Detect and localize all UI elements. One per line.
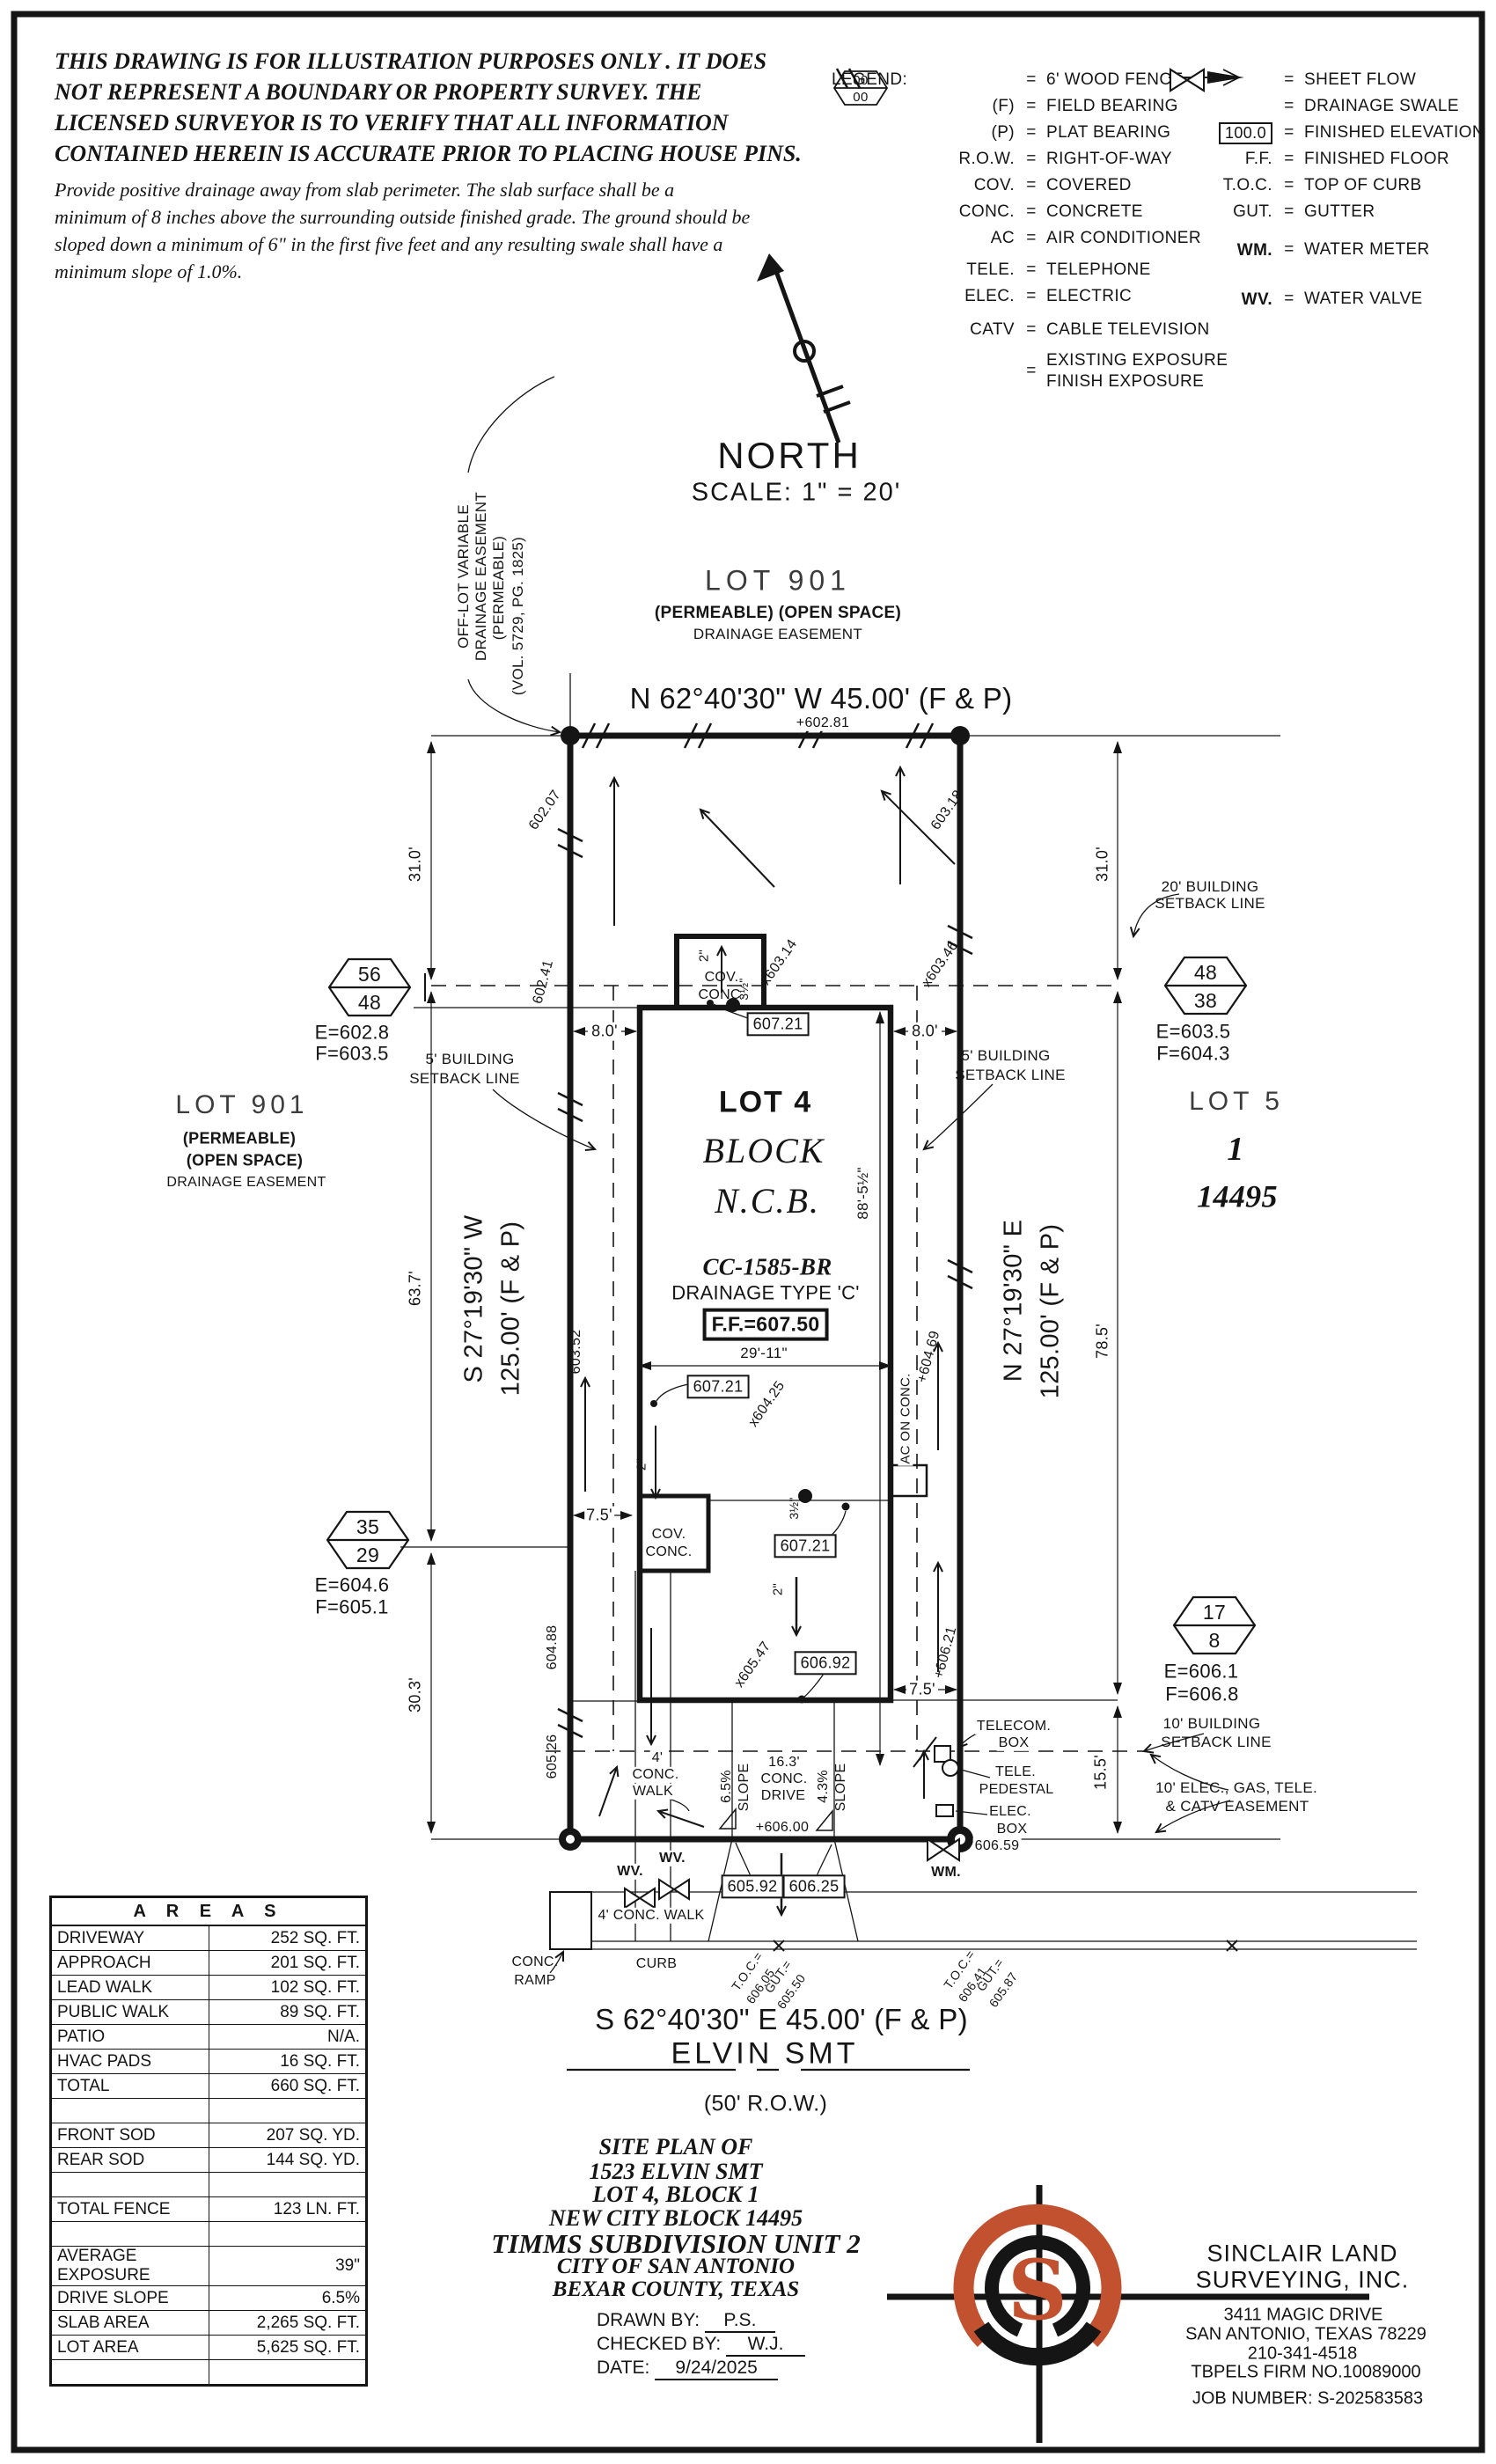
legend-abbr: WV. (1242, 291, 1272, 308)
areas-row-value: 207 SQ. YD. (209, 2123, 367, 2148)
spot-elev-604-88: 604.88 (545, 1625, 561, 1670)
legend-def: EXISTING EXPOSURE (1046, 350, 1228, 371)
dim-2in-low: 2" (770, 1583, 785, 1595)
checked-by-label: CHECKED BY: (597, 2334, 721, 2354)
areas-row-label (51, 2173, 209, 2197)
elev-box-607-21-b: 607.21 (687, 1375, 750, 1398)
legend-def: RIGHT-OF-WAY (1046, 150, 1172, 169)
elec-box-label-1: ELEC. (987, 1804, 1033, 1820)
areas-row-value: 5,625 SQ. FT. (209, 2336, 367, 2360)
ac-pad (891, 1465, 927, 1496)
legend-def: PLAT BEARING (1046, 123, 1170, 143)
areas-row-label: PATIO (51, 2025, 209, 2050)
areas-row (51, 2360, 367, 2386)
water-valve-symbol (625, 1888, 655, 1908)
legend-def: FINISH EXPOSURE (1046, 371, 1228, 392)
legend-abbr: TELE. (913, 260, 1016, 280)
disclaimer-line: minimum of 8 inches above the surroundin… (55, 203, 802, 231)
dim-31-0-left: 31.0' (407, 845, 425, 884)
legend-abbr: T.O.C. (1167, 176, 1274, 195)
cov-conc-porch-1: COV. (705, 970, 739, 986)
spot-elev-606-59: 606.59 (973, 1838, 1022, 1854)
hex17-finish: F=606.8 (1165, 1683, 1238, 1705)
lot4-title: LOT 4 (719, 1085, 812, 1119)
lot5-block-number: 1 (1227, 1131, 1243, 1170)
areas-row (51, 2173, 367, 2197)
hex48-existing: E=603.5 (1156, 1020, 1231, 1042)
elec-box-label-2: BOX (995, 1822, 1030, 1837)
areas-row-label: LEAD WALK (51, 1976, 209, 2000)
bearing-north: N 62°40'30" W 45.00' (F & P) (630, 682, 1013, 715)
easement10-label-1: 10' ELEC., GAS, TELE. (1155, 1779, 1317, 1797)
elev-box-607-21-c: 607.21 (774, 1534, 837, 1558)
legend-def: SHEET FLOW (1304, 70, 1416, 90)
legend-def: WATER VALVE (1304, 290, 1423, 309)
areas-row-value: 123 LN. FT. (209, 2197, 367, 2222)
disclaimer-line: THIS DRAWING IS FOR ILLUSTRATION PURPOSE… (55, 46, 802, 77)
spot-elev-602-81: +602.81 (795, 715, 851, 731)
areas-row: LOT AREA5,625 SQ. FT. (51, 2336, 367, 2360)
legend-row: T.O.C.=TOP OF CURB (1167, 172, 1485, 199)
lot901-left-sub2: (OPEN SPACE) (187, 1152, 303, 1170)
legend-def: FIELD BEARING (1046, 97, 1178, 116)
bearing-east-1: N 27°19'30" E (999, 1220, 1028, 1382)
areas-row: REAR SOD144 SQ. YD. (51, 2148, 367, 2173)
dim-63-7: 63.7' (407, 1269, 425, 1308)
surveyor-firm: TBPELS FIRM NO.10089000 (1191, 2363, 1420, 2383)
offlot-easement-line-1: OFF-LOT VARIABLE (455, 504, 473, 649)
legend-def: 6' WOOD FENCE (1046, 70, 1184, 90)
legend-def: FINISHED ELEVATION (1304, 123, 1485, 143)
setback20-label-1: 20' BUILDING (1162, 878, 1259, 896)
areas-row-value (209, 2099, 367, 2123)
legend-row: WV. = WATER VALVE (1167, 275, 1485, 324)
hex56-existing: E=602.8 (315, 1021, 390, 1043)
areas-row: AVERAGE EXPOSURE39" (51, 2247, 367, 2286)
finished-elevation-box: 100.0 (1219, 122, 1272, 144)
dim-2in-mid: 2" (634, 1458, 649, 1470)
areas-row-value: 252 SQ. FT. (209, 1925, 367, 1951)
dim-2in-porch: 2" (696, 950, 711, 962)
bearing-south: S 62°40'30" E 45.00' (F & P) (595, 2003, 968, 2036)
setback10-label-1: 10' BUILDING (1163, 1715, 1261, 1733)
setback10-label-2: SETBACK LINE (1161, 1734, 1271, 1751)
areas-row: LEAD WALK102 SQ. FT. (51, 1976, 367, 2000)
bearing-east-2: 125.00' (F & P) (1036, 1224, 1065, 1399)
title-line: CITY OF SAN ANTONIO (557, 2255, 795, 2279)
dim-7-5-left: 7.5' (584, 1507, 614, 1525)
legend-right: = SHEET FLOW = DRAINAGE SWALE 100.0 = FI… (1167, 67, 1485, 324)
legend-def: ELECTRIC (1046, 287, 1132, 306)
legend-abbr: (P) (913, 123, 1016, 143)
elev-box-605-92: 605.92 (722, 1874, 784, 1898)
areas-row-value (209, 2222, 367, 2247)
legend-abbr: R.O.W. (913, 150, 1016, 169)
tele-pedestal-label-2: PEDESTAL (978, 1782, 1056, 1798)
areas-row-value: 16 SQ. FT. (209, 2050, 367, 2074)
disclaimer-line: CONTAINED HEREIN IS ACCURATE PRIOR TO PL… (55, 138, 802, 169)
walk4-lower: 4' CONC. WALK (596, 1908, 706, 1924)
surveyor-phone: 210-341-4518 (1248, 2344, 1358, 2365)
setback20-label-2: SETBACK LINE (1155, 895, 1265, 913)
hex35-existing: E=604.6 (315, 1573, 390, 1595)
elev-box-606-92: 606.92 (795, 1651, 857, 1675)
legend-row: 100.0 = FINISHED ELEVATION (1167, 120, 1485, 146)
svg-text:00: 00 (853, 90, 869, 105)
hex35-bottom: 29 (356, 1544, 379, 1566)
drive-dim-1: 16.3' (768, 1755, 800, 1771)
surveyor-address: 3411 MAGIC DRIVE (1224, 2306, 1383, 2326)
areas-row-value: 102 SQ. FT. (209, 1976, 367, 2000)
ramp-label-1: CONC. (511, 1954, 558, 1970)
legend-abbr: ELEC. (913, 287, 1016, 306)
lot901-left-sub1: (PERMEABLE) (183, 1130, 296, 1148)
elev-box-606-25: 606.25 (783, 1874, 846, 1898)
dim-31-0-right: 31.0' (1094, 845, 1112, 884)
dim-3half-porch: 3½" (737, 978, 751, 1000)
cov-conc-entry-1: COV. (652, 1527, 686, 1543)
date-label: DATE: (597, 2358, 649, 2378)
areas-row-value: 201 SQ. FT. (209, 1951, 367, 1976)
slope-4-3-label: SLOPE (833, 1764, 849, 1812)
areas-row-label: DRIVE SLOPE (51, 2286, 209, 2311)
legend-def: WATER METER (1304, 240, 1430, 260)
lot901-left-title: LOT 901 (175, 1090, 308, 1121)
legend-abbr: COV. (913, 176, 1016, 195)
hex35-finish: F=605.1 (315, 1595, 388, 1617)
spot-elev-603-52: 603.52 (568, 1330, 584, 1375)
walk4-upper-2: CONC. (630, 1767, 680, 1783)
hex17-bottom: 8 (1208, 1629, 1220, 1652)
title-line: BEXAR COUNTY, TEXAS (553, 2277, 799, 2302)
scale-label: SCALE: 1" = 20' (692, 479, 901, 508)
areas-row-value: N/A. (209, 2025, 367, 2050)
curb-label: CURB (636, 1956, 678, 1972)
legend-row: = DRAINAGE SWALE (1167, 93, 1485, 120)
areas-row-value: 2,265 SQ. FT. (209, 2311, 367, 2336)
legend-abbr: F.F. (1167, 150, 1274, 169)
street-row: (50' R.O.W.) (704, 2092, 827, 2117)
dim-78-5: 78.5' (1094, 1322, 1112, 1360)
areas-row: APPROACH201 SQ. FT. (51, 1951, 367, 1976)
legend-abbr: AC (913, 229, 1016, 248)
setback5-left-1: 5' BUILDING (425, 1051, 514, 1068)
surveyor-job-number: JOB NUMBER: S-202583583 (1192, 2389, 1423, 2409)
areas-row: TOTAL FENCE123 LN. FT. (51, 2197, 367, 2222)
lot901-top-title: LOT 901 (705, 565, 851, 598)
areas-row-value: 144 SQ. YD. (209, 2148, 367, 2173)
drive-dim-2: CONC. (760, 1771, 807, 1787)
areas-row-label: SLAB AREA (51, 2311, 209, 2336)
tele-pedestal-label-1: TELE. (994, 1764, 1038, 1780)
cov-conc-entry-2: CONC. (645, 1544, 692, 1560)
legend-row: F.F.=FINISHED FLOOR (1167, 146, 1485, 172)
dim-88-5half: 88'-5½" (854, 1165, 872, 1221)
areas-row-label: TOTAL (51, 2074, 209, 2099)
areas-row: DRIVE SLOPE6.5% (51, 2286, 367, 2311)
dim-29-11: 29'-11" (738, 1345, 789, 1362)
water-valve-label-2: WV. (657, 1851, 687, 1866)
hex17-top: 17 (1203, 1601, 1226, 1624)
areas-row-label: HVAC PADS (51, 2050, 209, 2074)
offlot-easement-line-3: (PERMEABLE) (490, 536, 508, 641)
areas-row-label: LOT AREA (51, 2336, 209, 2360)
hex48-finish: F=604.3 (1156, 1042, 1229, 1064)
drawn-by-value: P.S. (705, 2310, 775, 2333)
elev-box-607-21-a: 607.21 (747, 1012, 810, 1036)
disclaimer-line: LICENSED SURVEYOR IS TO VERIFY THAT ALL … (55, 107, 802, 138)
water-valve-icon (1167, 67, 1207, 93)
lot5-ncb-number: 14495 (1197, 1178, 1278, 1214)
areas-row-label (51, 2099, 209, 2123)
slope-4-3-pct: 4.3% (816, 1770, 832, 1803)
areas-row: PUBLIC WALK89 SQ. FT. (51, 2000, 367, 2025)
areas-row: SLAB AREA2,265 SQ. FT. (51, 2311, 367, 2336)
areas-row (51, 2222, 367, 2247)
slope-6-5-label: SLOPE (737, 1764, 752, 1812)
date-value: 9/24/2025 (655, 2358, 778, 2380)
areas-row-label: APPROACH (51, 1951, 209, 1976)
legend-def: TELEPHONE (1046, 260, 1151, 280)
offlot-easement-line-4: (VOL. 5729, PG. 1825) (510, 537, 527, 695)
street-name: ELVIN SMT (671, 2036, 859, 2071)
areas-row: PATION/A. (51, 2025, 367, 2050)
dim-8-0-right: 8.0' (910, 1023, 940, 1041)
areas-table-title: A R E A S (51, 1897, 367, 1926)
areas-row-label (51, 2222, 209, 2247)
legend-abbr: CONC. (913, 202, 1016, 222)
ramp-label-2: RAMP (514, 1973, 555, 1989)
areas-row-value: 39" (209, 2247, 367, 2286)
lot901-top-sub2: DRAINAGE EASEMENT (693, 626, 862, 643)
drawn-by-label: DRAWN BY: (597, 2310, 700, 2330)
legend-abbr: CATV (913, 320, 1016, 340)
lot4-ncb: N.C.B. (715, 1181, 820, 1221)
water-valve-label-1: WV. (615, 1864, 645, 1880)
legend-abbr: WM. (1237, 242, 1272, 259)
disclaimer-line: minimum slope of 1.0%. (55, 258, 802, 285)
areas-row-value: 6.5% (209, 2286, 367, 2311)
legend-row: WM. = WATER METER (1167, 225, 1485, 275)
areas-row-label: AVERAGE EXPOSURE (51, 2247, 209, 2286)
areas-row-label: DRIVEWAY (51, 1925, 209, 1951)
elec-box-symbol (936, 1805, 953, 1816)
title-line: LOT 4, BLOCK 1 (592, 2182, 759, 2208)
legend-row: 00 00 = EXISTING EXPOSURE FINISH EXPOSUR… (832, 348, 1228, 394)
walk4-upper-1: 4' (650, 1750, 665, 1766)
legend-def: DRAINAGE SWALE (1304, 97, 1459, 116)
dim-30-3: 30.3' (407, 1676, 425, 1714)
areas-row-value (209, 2360, 367, 2386)
dim-8-0-left: 8.0' (590, 1023, 620, 1041)
tele-pedestal-symbol (942, 1760, 958, 1776)
telecom-box-symbol (935, 1746, 950, 1762)
disclaimer-line: sloped down a minimum of 6" in the first… (55, 231, 802, 258)
fence-hatches (558, 723, 972, 1737)
bearing-west-1: S 27°19'30" W (459, 1215, 488, 1383)
areas-row-label (51, 2360, 209, 2386)
slope-6-5-pct: 6.5% (719, 1770, 735, 1803)
disclaimer-line: Provide positive drainage away from slab… (55, 176, 802, 203)
areas-row: FRONT SOD207 SQ. YD. (51, 2123, 367, 2148)
areas-row (51, 2099, 367, 2123)
offlot-easement-line-2: DRAINAGE EASEMENT (473, 492, 490, 661)
water-valve-symbol (659, 1880, 689, 1899)
sinclair-logo-letter: S (1008, 2242, 1067, 2339)
hex56-finish: F=603.5 (315, 1042, 388, 1064)
dim-15-5: 15.5' (1092, 1753, 1111, 1792)
areas-row-label: FRONT SOD (51, 2123, 209, 2148)
lot5-title: LOT 5 (1189, 1087, 1284, 1118)
telecom-box-label-1: TELECOM. (975, 1719, 1052, 1734)
areas-row-label: PUBLIC WALK (51, 2000, 209, 2025)
legend-def: GUTTER (1304, 202, 1375, 222)
hex48-top: 48 (1194, 961, 1217, 984)
setback5-right-1: 5' BUILDING (961, 1047, 1050, 1065)
spot-elev-605-26: 605.26 (545, 1734, 561, 1779)
legend-def: TOP OF CURB (1304, 176, 1422, 195)
lot4-block: BLOCK (703, 1131, 825, 1171)
legend-def: FINISHED FLOOR (1304, 150, 1449, 169)
areas-row-label: TOTAL FENCE (51, 2197, 209, 2222)
hex48-bottom: 38 (1194, 989, 1217, 1012)
legend-row: GUT.=GUTTER (1167, 199, 1485, 225)
areas-row: DRIVEWAY252 SQ. FT. (51, 1925, 367, 1951)
drainage-type: DRAINAGE TYPE 'C' (671, 1281, 860, 1303)
disclaimer-line: NOT REPRESENT A BOUNDARY OR PROPERTY SUR… (55, 77, 802, 107)
ac-on-conc: AC ON CONC. (898, 1371, 913, 1465)
hex35-top: 35 (356, 1515, 379, 1538)
lot901-left-sub3: DRAINAGE EASEMENT (166, 1175, 326, 1191)
easement10-label-2: & CATV EASEMENT (1166, 1798, 1309, 1815)
checked-by-value: W.J. (726, 2334, 805, 2357)
hex56-top: 56 (358, 963, 381, 986)
svg-text:00: 00 (853, 73, 869, 88)
disclaimer-block: THIS DRAWING IS FOR ILLUSTRATION PURPOSE… (55, 46, 802, 285)
water-meter-symbol (928, 1839, 959, 1860)
drive-dim-3: DRIVE (761, 1788, 805, 1804)
areas-row: TOTAL660 SQ. FT. (51, 2074, 367, 2099)
water-meter-label: WM. (929, 1865, 963, 1881)
surveyor-name: SINCLAIR LAND (1206, 2240, 1397, 2268)
bearing-west-2: 125.00' (F & P) (496, 1221, 525, 1397)
finished-floor-elevation: F.F.=607.50 (703, 1309, 829, 1341)
legend-abbr: (F) (913, 97, 1016, 116)
setback5-right-2: SETBACK LINE (955, 1067, 1065, 1084)
conc-ramp (550, 1892, 591, 1949)
areas-row-value: 89 SQ. FT. (209, 2000, 367, 2025)
areas-table: A R E A S DRIVEWAY252 SQ. FT.APPROACH201… (49, 1896, 368, 2387)
setback5-left-2: SETBACK LINE (409, 1070, 519, 1088)
areas-row-label: REAR SOD (51, 2148, 209, 2173)
legend-def: COVERED (1046, 176, 1132, 195)
legend-abbr: GUT. (1167, 202, 1274, 222)
dim-7-5-right: 7.5' (907, 1681, 937, 1699)
surveyor-name: SURVEYING, INC. (1196, 2267, 1410, 2294)
areas-row-value: 660 SQ. FT. (209, 2074, 367, 2099)
title-line: SITE PLAN OF (599, 2134, 753, 2160)
cc-number: CC-1585-BR (702, 1253, 832, 1280)
areas-row-value (209, 2173, 367, 2197)
telecom-box-label-2: BOX (997, 1735, 1031, 1751)
hex56-bottom: 48 (358, 991, 381, 1014)
spot-elev-606-00: +606.00 (754, 1820, 810, 1836)
dim-3half-mid: 3½" (787, 1497, 801, 1519)
hex17-existing: E=606.1 (1164, 1660, 1239, 1682)
areas-row: HVAC PADS16 SQ. FT. (51, 2050, 367, 2074)
legend-def: CONCRETE (1046, 202, 1143, 222)
surveyor-address: SAN ANTONIO, TEXAS 78229 (1185, 2325, 1426, 2345)
lot901-top-sub1: (PERMEABLE) (OPEN SPACE) (655, 604, 901, 623)
site-plan-sheet: THIS DRAWING IS FOR ILLUSTRATION PURPOSE… (0, 0, 1496, 2464)
north-label: NORTH (717, 435, 862, 477)
walk4-upper-3: WALK (631, 1784, 675, 1800)
